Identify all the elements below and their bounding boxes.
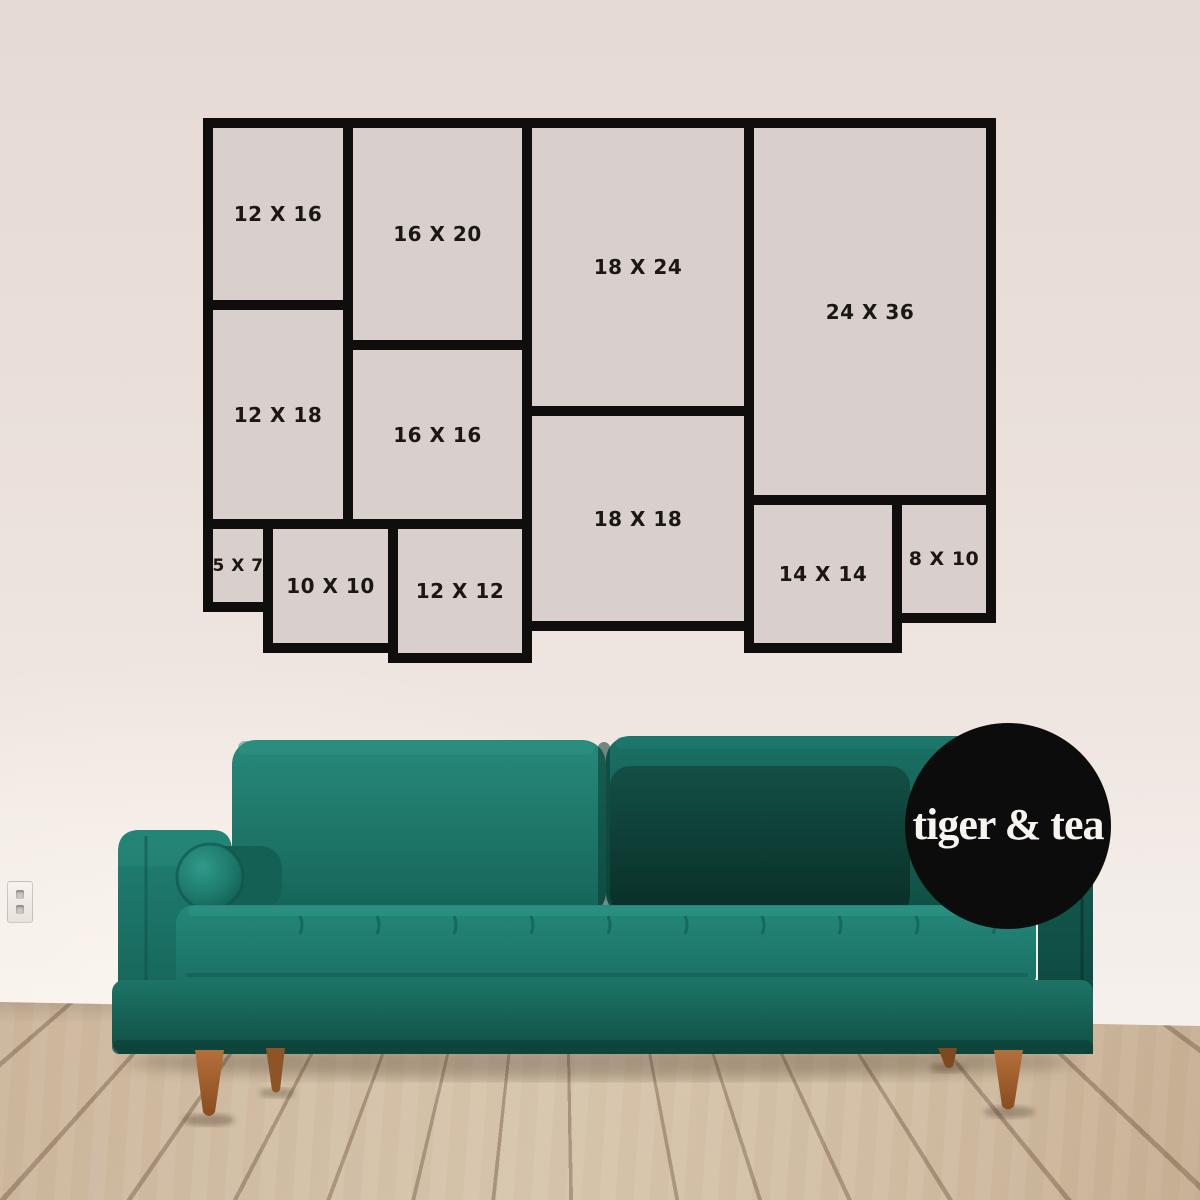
cushion-highlight <box>238 741 594 755</box>
sofa-leg-front-left <box>195 1050 224 1116</box>
seat-top-sheen <box>188 906 1024 916</box>
sofa-photo <box>0 0 1200 1200</box>
product-mockup: 12 X 1616 X 2018 X 2424 X 3612 X 1816 X … <box>0 0 1200 1200</box>
seat-cushion-shade <box>176 905 1036 993</box>
brand-logo-text: tiger & tea <box>913 799 1104 850</box>
back-cushion-left <box>232 740 606 916</box>
brand-logo: tiger & tea <box>905 723 1111 929</box>
cushion-gap <box>598 742 610 914</box>
lumbar-pillow-dark <box>610 766 910 916</box>
sofa-leg-front-right <box>994 1050 1023 1110</box>
